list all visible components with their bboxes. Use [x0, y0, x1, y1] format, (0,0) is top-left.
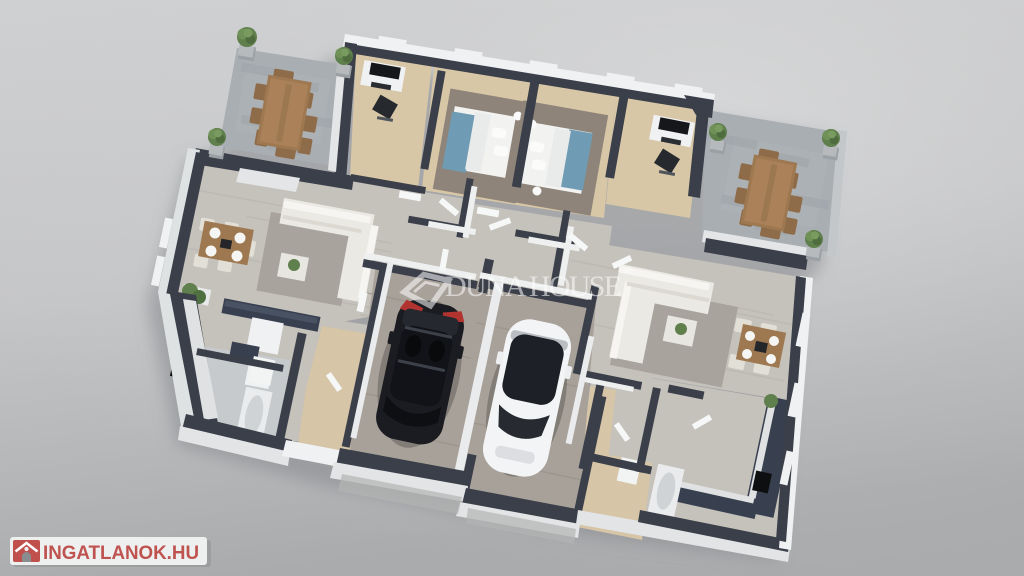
svg-text:INGATLANOK.HU: INGATLANOK.HU [43, 542, 199, 564]
svg-text:®: ® [624, 265, 632, 277]
svg-text:DUNA HOUSE: DUNA HOUSE [445, 270, 622, 303]
